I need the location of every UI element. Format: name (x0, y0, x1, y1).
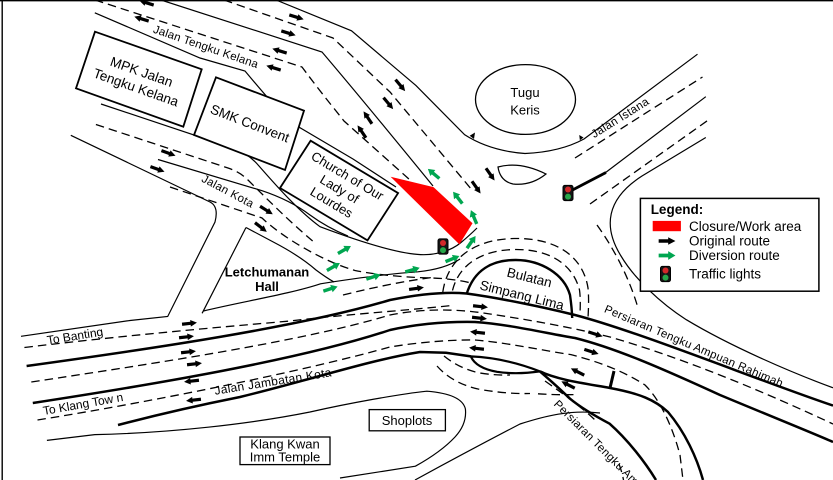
svg-text:Closure/Work area: Closure/Work area (689, 219, 802, 234)
svg-text:Keris: Keris (510, 103, 540, 118)
svg-text:Traffic lights: Traffic lights (689, 267, 761, 282)
svg-text:Imm Temple: Imm Temple (250, 450, 321, 465)
svg-text:Legend:: Legend: (651, 202, 704, 217)
svg-text:Shoplots: Shoplots (382, 413, 433, 428)
svg-text:Diversion route: Diversion route (689, 248, 780, 263)
svg-text:Original route: Original route (689, 234, 770, 249)
svg-text:Letchumanan: Letchumanan (225, 265, 310, 280)
svg-text:Hall: Hall (255, 279, 279, 294)
svg-text:Tugu: Tugu (510, 85, 539, 100)
